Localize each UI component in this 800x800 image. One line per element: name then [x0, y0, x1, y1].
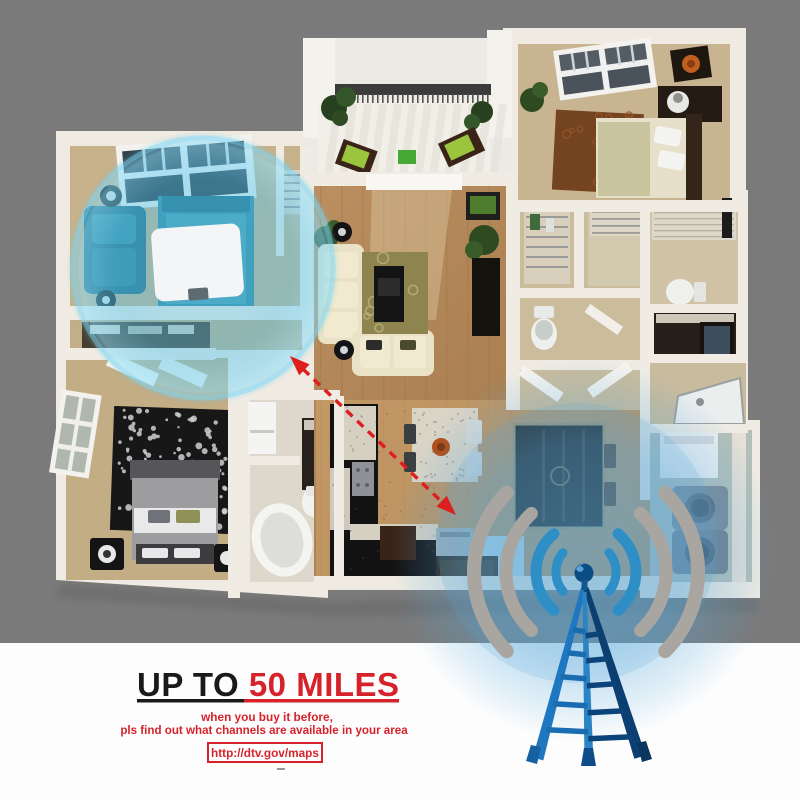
svg-text:when you buy it before,: when you buy it before,: [200, 710, 333, 724]
svg-text:http://dtv.gov/maps: http://dtv.gov/maps: [211, 746, 319, 760]
svg-text:pls find out what channels are: pls find out what channels are available…: [120, 724, 408, 737]
svg-text:UP TO 50 MILES: UP TO 50 MILES: [137, 666, 400, 703]
